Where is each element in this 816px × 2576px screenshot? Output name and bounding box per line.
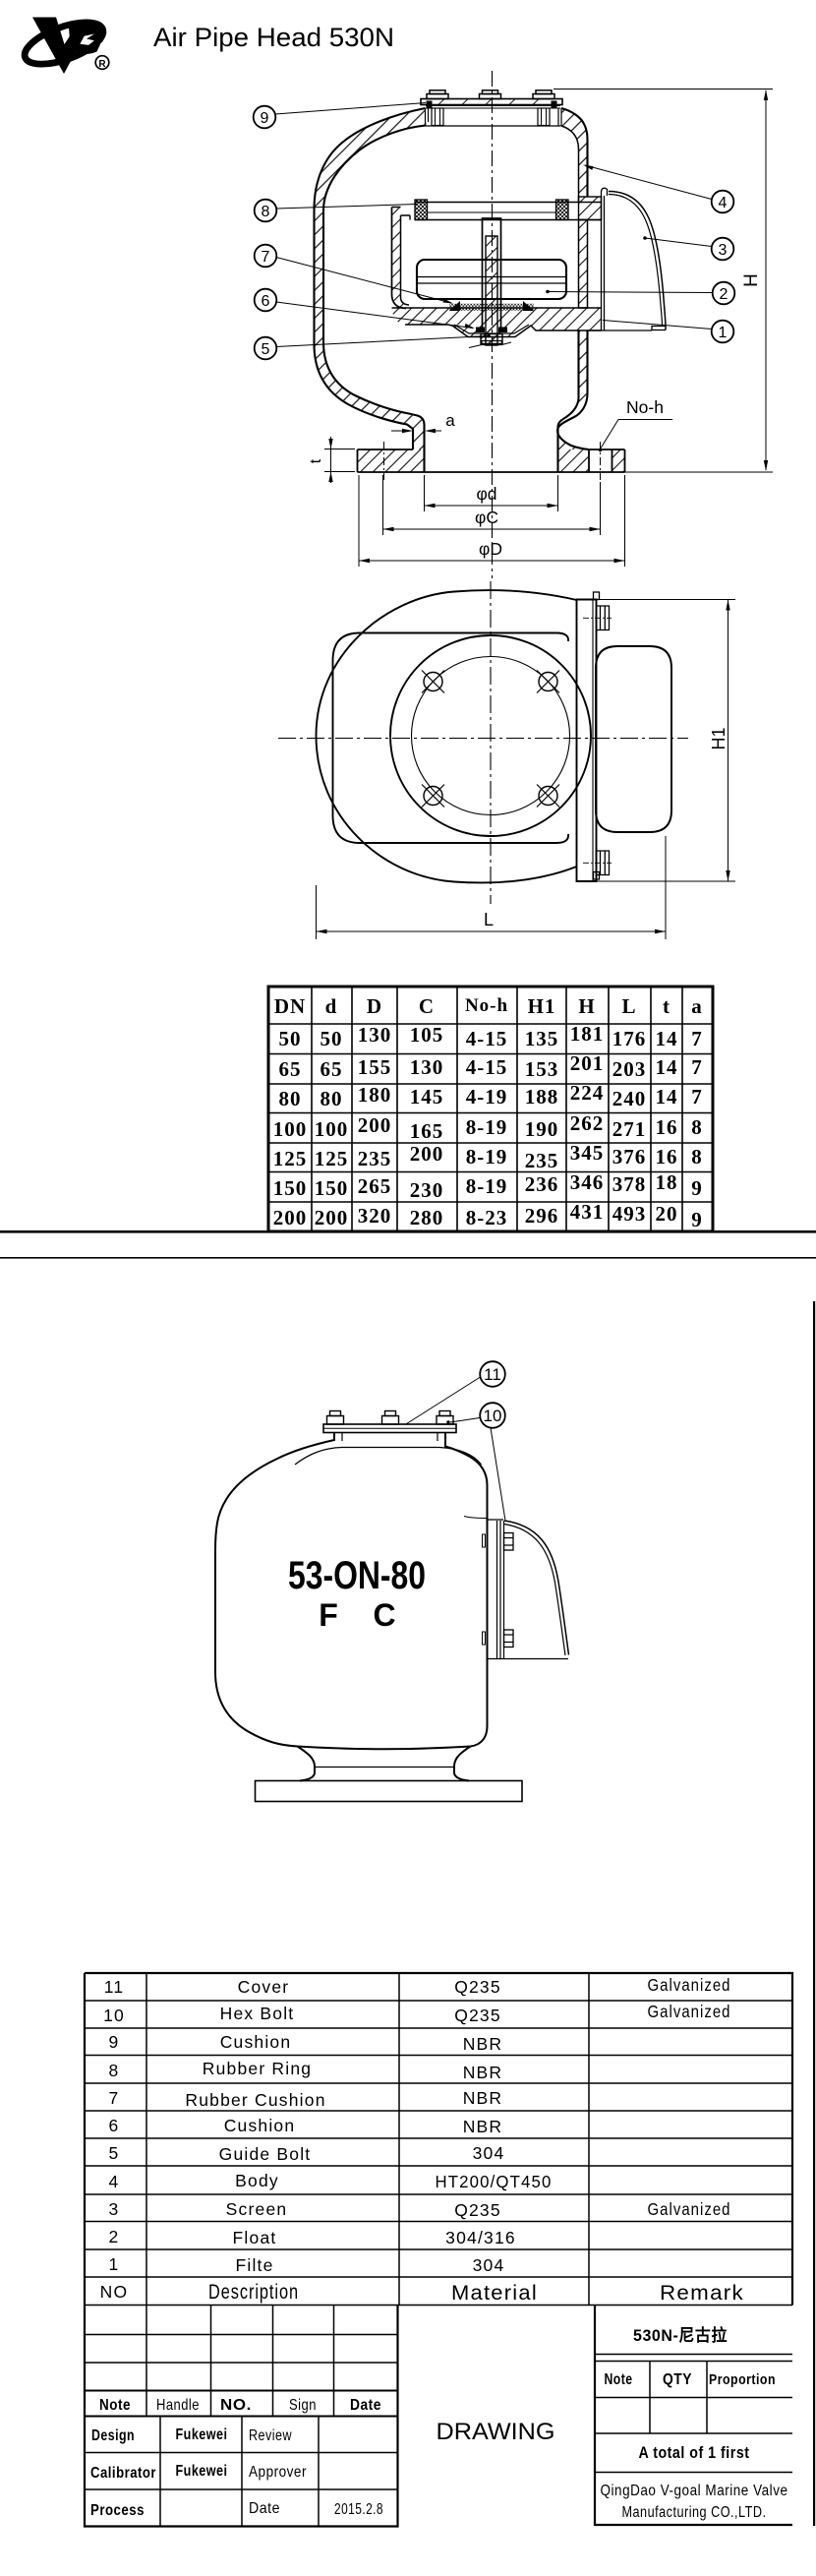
svg-text:150: 150: [273, 1176, 308, 1200]
svg-text:Fukewei: Fukewei: [176, 2426, 228, 2443]
svg-text:271: 271: [612, 1117, 647, 1141]
svg-text:203: 203: [612, 1057, 647, 1081]
svg-text:4-15: 4-15: [466, 1027, 508, 1050]
svg-text:180: 180: [358, 1083, 392, 1107]
svg-text:9: 9: [261, 110, 269, 127]
svg-text:376: 376: [612, 1145, 647, 1168]
svg-text:304: 304: [473, 2143, 505, 2163]
svg-text:153: 153: [525, 1057, 559, 1081]
svg-text:8-19: 8-19: [466, 1115, 508, 1139]
svg-text:65: 65: [279, 1057, 302, 1081]
svg-text:3: 3: [719, 242, 728, 259]
svg-text:a: a: [691, 994, 703, 1018]
svg-text:NBR: NBR: [463, 2117, 503, 2136]
svg-text:4-19: 4-19: [466, 1085, 508, 1108]
svg-text:235: 235: [525, 1149, 559, 1172]
svg-text:80: 80: [279, 1087, 302, 1110]
svg-text:100: 100: [273, 1117, 308, 1141]
svg-text:Rubber Ring: Rubber Ring: [203, 2059, 312, 2078]
svg-text:Note: Note: [99, 2397, 131, 2414]
svg-text:20: 20: [656, 1202, 678, 1226]
svg-text:Galvanized: Galvanized: [648, 1975, 731, 1995]
svg-text:4: 4: [109, 2172, 120, 2191]
svg-text:135: 135: [525, 1027, 559, 1050]
svg-text:Q235: Q235: [454, 2200, 501, 2220]
svg-text:16: 16: [656, 1115, 678, 1139]
svg-text:262: 262: [570, 1111, 605, 1135]
svg-text:265: 265: [358, 1174, 392, 1198]
svg-text:t: t: [663, 994, 670, 1018]
svg-text:Body: Body: [235, 2171, 279, 2190]
svg-text:7: 7: [691, 1055, 703, 1079]
svg-text:296: 296: [525, 1204, 559, 1228]
svg-text:8: 8: [691, 1115, 703, 1139]
svg-text:NO: NO: [100, 2282, 129, 2302]
svg-text:Screen: Screen: [226, 2199, 288, 2219]
svg-text:Manufacturing CO.,LTD.: Manufacturing CO.,LTD.: [622, 2504, 767, 2521]
svg-text:5: 5: [262, 341, 270, 358]
svg-text:155: 155: [358, 1055, 392, 1079]
svg-text:H1: H1: [528, 994, 556, 1018]
svg-text:236: 236: [525, 1172, 559, 1196]
svg-text:3: 3: [109, 2199, 120, 2219]
svg-text:Approver: Approver: [249, 2464, 307, 2481]
svg-text:493: 493: [612, 1202, 647, 1226]
svg-text:Guide Bolt: Guide Bolt: [219, 2144, 312, 2164]
svg-text:t: t: [308, 458, 324, 463]
svg-text:QTY: QTY: [663, 2371, 692, 2388]
svg-text:80: 80: [321, 1087, 343, 1110]
svg-text:6: 6: [262, 293, 270, 310]
svg-text:9: 9: [109, 2032, 120, 2052]
svg-text:Float: Float: [233, 2228, 277, 2247]
svg-text:4: 4: [719, 195, 728, 211]
svg-text:7: 7: [691, 1027, 703, 1050]
svg-text:1: 1: [109, 2254, 120, 2274]
svg-text:65: 65: [321, 1057, 343, 1081]
svg-text:NO.: NO.: [220, 2397, 252, 2414]
svg-text:14: 14: [656, 1027, 678, 1050]
svg-text:NBR: NBR: [463, 2063, 503, 2082]
svg-text:50: 50: [321, 1027, 343, 1050]
svg-text:Material: Material: [451, 2282, 538, 2305]
svg-text:10: 10: [103, 2006, 125, 2025]
svg-text:18: 18: [656, 1170, 678, 1194]
svg-text:125: 125: [273, 1147, 308, 1170]
svg-text:Note: Note: [605, 2371, 633, 2388]
svg-text:11: 11: [104, 1977, 125, 1997]
svg-text:11: 11: [484, 1365, 501, 1384]
svg-text:Galvanized: Galvanized: [648, 2002, 731, 2021]
svg-text:240: 240: [612, 1087, 647, 1110]
svg-text:Q235: Q235: [454, 2006, 501, 2025]
svg-text:201: 201: [570, 1051, 605, 1075]
svg-text:Remark: Remark: [660, 2282, 744, 2305]
svg-text:200: 200: [315, 1206, 349, 1229]
svg-text:L: L: [621, 994, 636, 1018]
svg-text:Handle: Handle: [156, 2397, 200, 2414]
svg-text:Proportion: Proportion: [709, 2371, 776, 2388]
svg-text:H: H: [578, 994, 595, 1018]
svg-text:NBR: NBR: [463, 2088, 503, 2108]
svg-text:a: a: [445, 411, 455, 430]
svg-text:378: 378: [612, 1172, 647, 1196]
svg-text:145: 145: [410, 1085, 444, 1108]
svg-text:125: 125: [315, 1147, 349, 1170]
svg-text:DRAWING: DRAWING: [437, 2419, 555, 2445]
svg-text:HT200/QT450: HT200/QT450: [436, 2172, 553, 2191]
svg-text:2015.2.8: 2015.2.8: [334, 2501, 383, 2518]
svg-text:8: 8: [262, 204, 270, 220]
svg-text:DN: DN: [274, 994, 306, 1018]
svg-text:No-h: No-h: [626, 397, 664, 417]
svg-text:100: 100: [315, 1117, 349, 1141]
svg-text:530N-尼古拉: 530N-尼古拉: [633, 2325, 728, 2345]
svg-text:4-15: 4-15: [466, 1055, 508, 1079]
svg-text:7: 7: [109, 2088, 120, 2108]
svg-text:190: 190: [525, 1117, 559, 1141]
svg-text:14: 14: [656, 1055, 678, 1079]
svg-text:235: 235: [358, 1147, 392, 1170]
svg-text:Calibrator: Calibrator: [90, 2465, 156, 2482]
svg-text:188: 188: [525, 1085, 559, 1108]
svg-text:Rubber Cushion: Rubber Cushion: [185, 2090, 325, 2110]
svg-text:7: 7: [691, 1085, 703, 1108]
svg-text:14: 14: [656, 1085, 678, 1108]
svg-text:Cushion: Cushion: [220, 2032, 292, 2052]
svg-text:A total of 1 first: A total of 1 first: [639, 2444, 750, 2462]
svg-text:2: 2: [720, 286, 729, 303]
svg-text:176: 176: [612, 1027, 647, 1050]
svg-text:200: 200: [273, 1206, 308, 1229]
svg-text:431: 431: [570, 1200, 605, 1224]
svg-text:150: 150: [315, 1176, 349, 1200]
svg-text:Date: Date: [249, 2500, 280, 2517]
svg-text:Process: Process: [90, 2502, 145, 2519]
svg-text:Hex Bolt: Hex Bolt: [220, 2004, 295, 2023]
svg-text:Review: Review: [249, 2427, 292, 2444]
svg-text:Description: Description: [208, 2281, 299, 2304]
svg-text:181: 181: [570, 1022, 605, 1046]
svg-text:8-19: 8-19: [466, 1145, 508, 1168]
svg-text:Galvanized: Galvanized: [648, 2199, 731, 2219]
svg-text:304: 304: [473, 2255, 505, 2275]
svg-text:H: H: [741, 273, 762, 287]
svg-text:165: 165: [410, 1119, 444, 1143]
svg-text:9: 9: [691, 1176, 703, 1200]
svg-text:200: 200: [410, 1142, 444, 1166]
svg-text:130: 130: [358, 1023, 392, 1047]
svg-text:Cover: Cover: [238, 1977, 290, 1997]
svg-text:QingDao V-goal Marine Valve: QingDao V-goal Marine Valve: [601, 2483, 788, 2499]
svg-text:16: 16: [656, 1145, 678, 1168]
svg-text:C: C: [419, 994, 435, 1018]
svg-text:Design: Design: [91, 2427, 135, 2444]
svg-text:φd: φd: [476, 484, 496, 504]
svg-text:Air Pipe Head 530N: Air Pipe Head 530N: [153, 23, 394, 52]
svg-text:F: F: [319, 1597, 338, 1633]
svg-text:224: 224: [570, 1081, 605, 1105]
svg-text:105: 105: [410, 1023, 444, 1047]
svg-text:200: 200: [358, 1113, 392, 1137]
svg-text:320: 320: [358, 1204, 392, 1228]
svg-text:345: 345: [570, 1141, 605, 1165]
svg-text:6: 6: [109, 2116, 120, 2135]
svg-text:8-23: 8-23: [466, 1206, 508, 1229]
svg-text:H1: H1: [709, 727, 729, 749]
svg-text:230: 230: [410, 1178, 444, 1202]
svg-text:53-ON-80: 53-ON-80: [288, 1554, 426, 1597]
svg-text:Filte: Filte: [235, 2255, 273, 2275]
svg-text:8: 8: [691, 1145, 703, 1168]
svg-text:NBR: NBR: [463, 2034, 503, 2054]
svg-text:7: 7: [262, 249, 270, 266]
svg-text:8: 8: [109, 2061, 120, 2080]
svg-text:Sign: Sign: [289, 2397, 317, 2414]
svg-text:Date: Date: [350, 2397, 381, 2414]
svg-text:9: 9: [691, 1208, 703, 1231]
svg-text:50: 50: [279, 1027, 302, 1050]
svg-text:D: D: [367, 994, 382, 1018]
svg-text:C: C: [373, 1597, 395, 1633]
svg-text:L: L: [484, 910, 494, 929]
svg-text:346: 346: [570, 1170, 605, 1194]
svg-text:280: 280: [410, 1206, 444, 1229]
svg-text:Cushion: Cushion: [224, 2116, 296, 2135]
svg-text:φC: φC: [475, 508, 498, 527]
svg-text:5: 5: [109, 2143, 120, 2163]
svg-text:Fukewei: Fukewei: [176, 2463, 228, 2480]
svg-text:304/316: 304/316: [445, 2228, 516, 2247]
svg-text:2: 2: [109, 2227, 120, 2247]
svg-text:10: 10: [484, 1407, 502, 1425]
svg-text:d: d: [325, 994, 338, 1018]
svg-text:130: 130: [410, 1055, 444, 1079]
svg-text:R: R: [98, 59, 106, 70]
svg-text:Q235: Q235: [454, 1977, 501, 1997]
svg-text:8-19: 8-19: [466, 1174, 508, 1198]
svg-text:φD: φD: [479, 539, 502, 559]
svg-text:No-h: No-h: [465, 995, 508, 1016]
svg-text:1: 1: [719, 325, 728, 341]
